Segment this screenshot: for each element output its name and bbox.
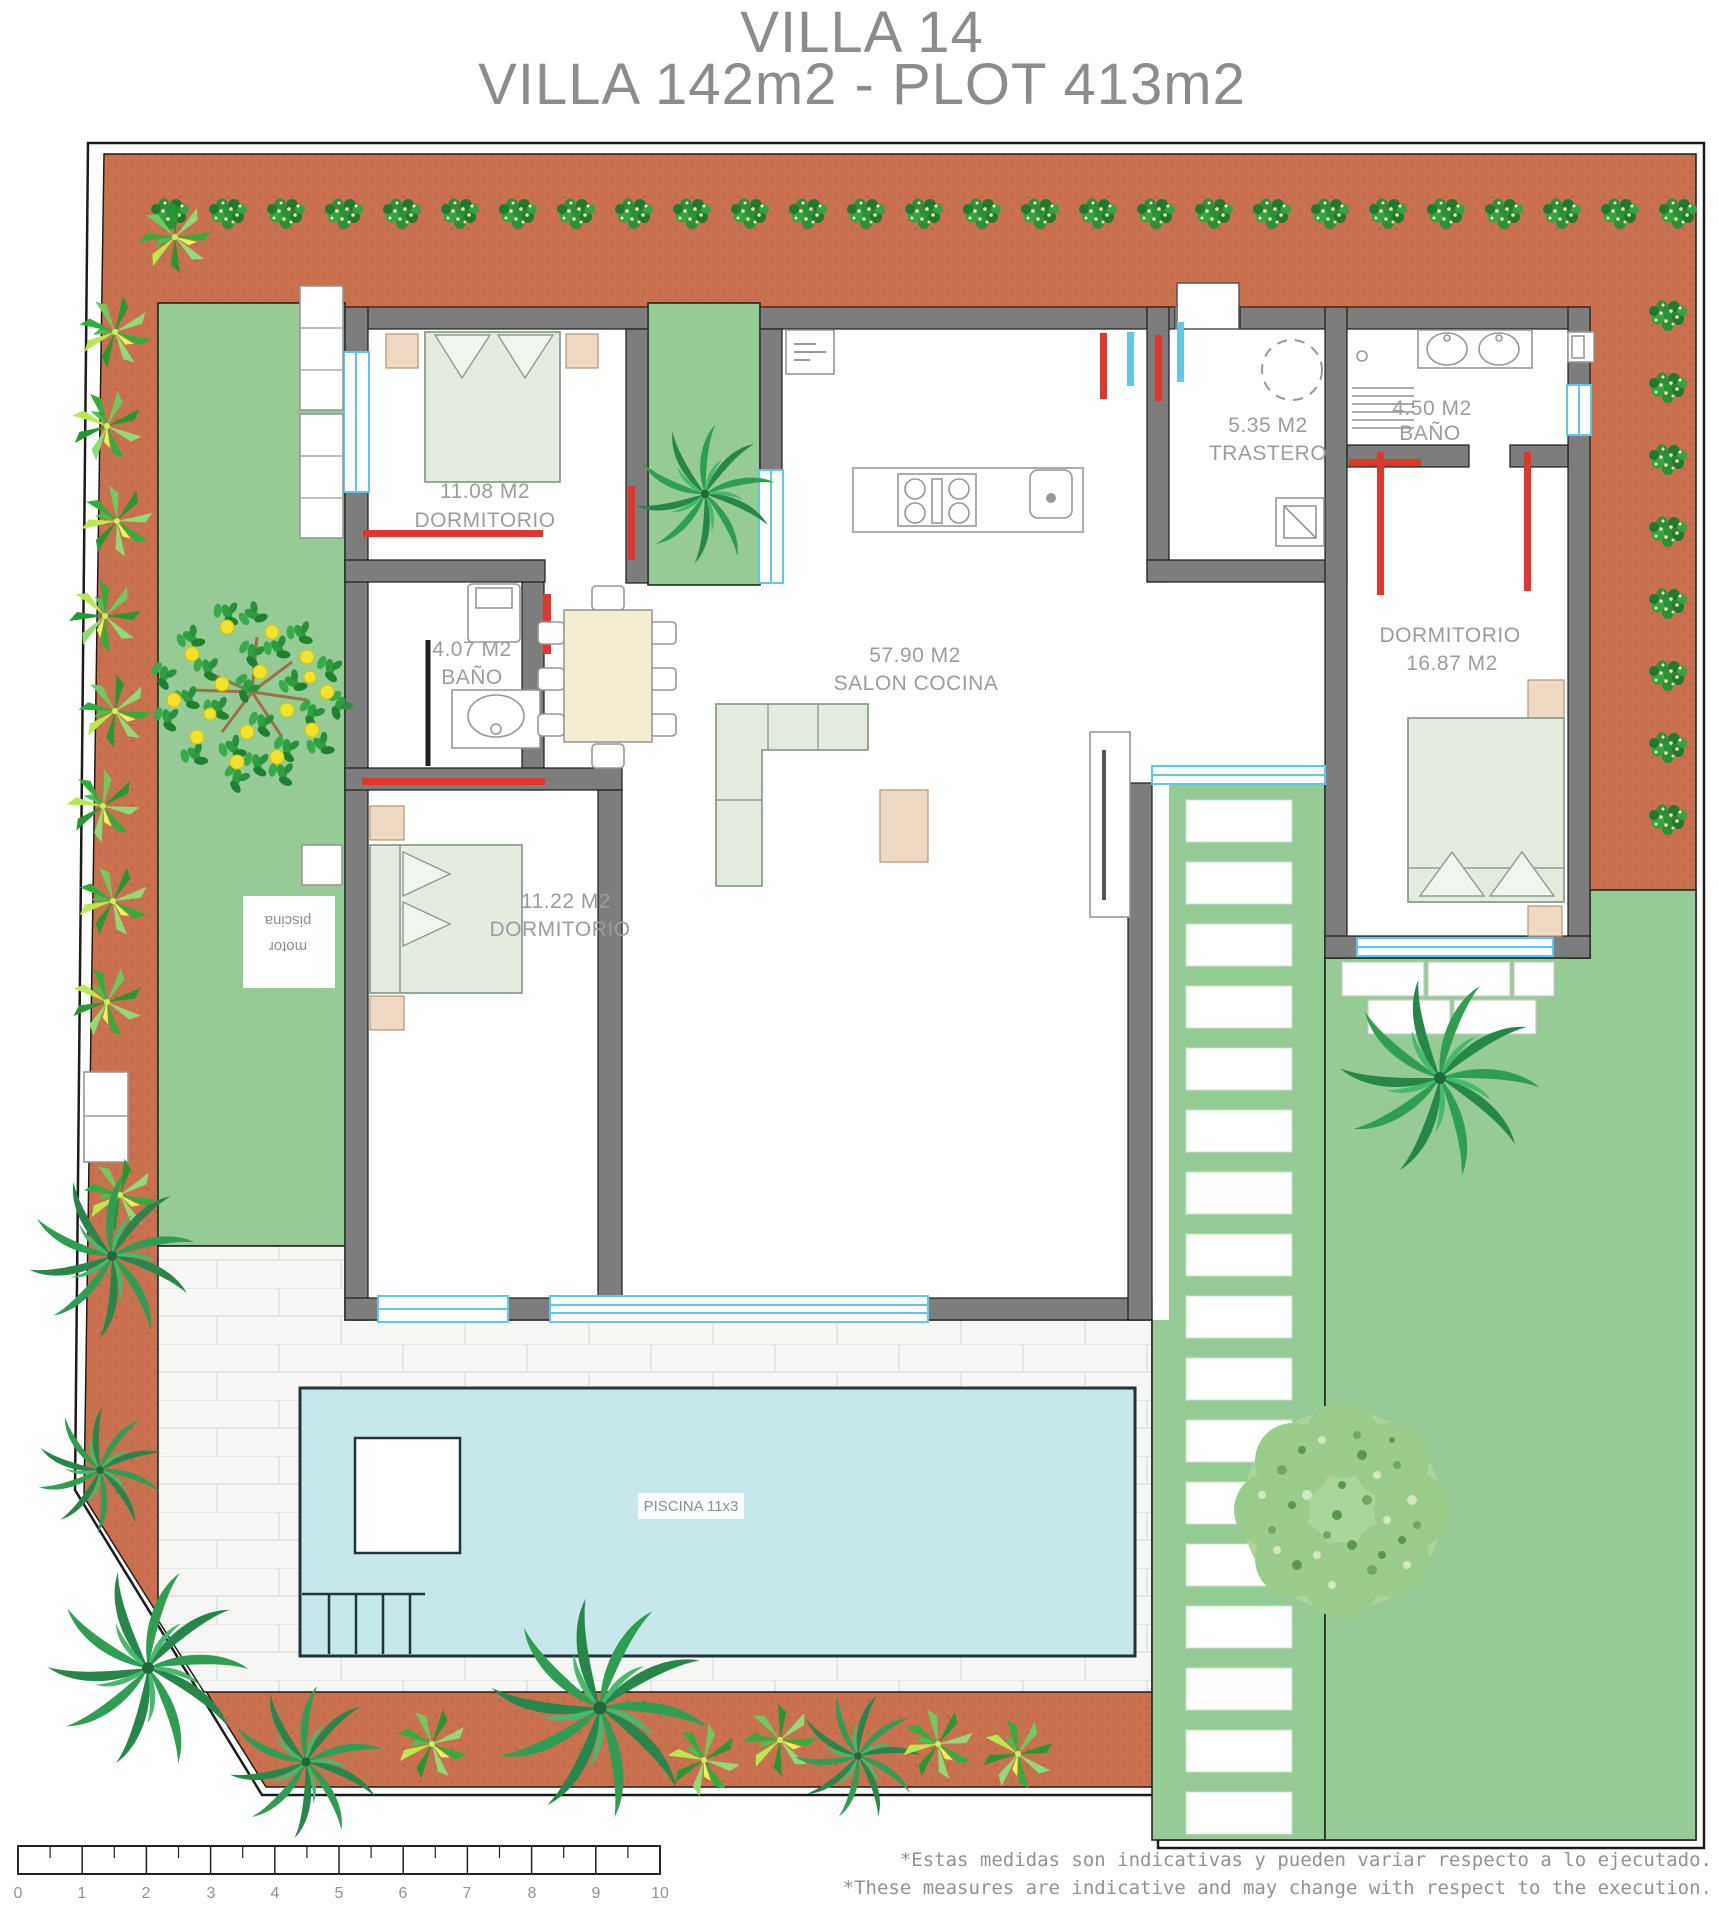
window bbox=[759, 470, 783, 583]
dormitorio1-area: 11.08 M2 bbox=[440, 480, 530, 503]
tv-unit bbox=[1090, 732, 1130, 917]
nightstand bbox=[386, 334, 418, 368]
coffee-table bbox=[880, 790, 928, 862]
scale-label: 10 bbox=[651, 1885, 669, 1902]
trastero-area: 5.35 M2 bbox=[1228, 414, 1307, 437]
bano1-name: BAÑO bbox=[441, 665, 503, 689]
stepping-stones bbox=[1186, 800, 1292, 1834]
bano2-name: BAÑO bbox=[1399, 421, 1461, 445]
dining-table bbox=[564, 610, 652, 742]
scale-label: 3 bbox=[207, 1885, 216, 1902]
dormitorio2-area: 11.22 M2 bbox=[521, 890, 611, 913]
window bbox=[378, 1296, 508, 1322]
scale-label: 7 bbox=[463, 1885, 472, 1902]
window bbox=[1357, 938, 1553, 956]
right-garden-bush bbox=[1234, 1402, 1450, 1618]
bedroom3-furniture bbox=[1408, 680, 1564, 936]
scale-label: 4 bbox=[271, 1885, 280, 1902]
title-line2: VILLA 142m2 - PLOT 413m2 bbox=[478, 52, 1246, 117]
entry-porch bbox=[1177, 283, 1239, 329]
closet bbox=[300, 414, 343, 538]
nightstand bbox=[566, 334, 598, 368]
scale-label: 1 bbox=[78, 1885, 87, 1902]
pool-motor-label-motor: motor bbox=[269, 938, 307, 955]
bano2-area: 4.50 M2 bbox=[1392, 397, 1471, 420]
nightstand bbox=[370, 806, 404, 840]
pool-platform bbox=[355, 1438, 460, 1553]
window bbox=[550, 1296, 928, 1322]
utility-box bbox=[84, 1072, 128, 1162]
bano1-area: 4.07 M2 bbox=[432, 638, 511, 661]
pool: PISCINA 11x3 bbox=[300, 1388, 1135, 1656]
disclaimer-en: *These measures are indicative and may c… bbox=[843, 1877, 1712, 1899]
scale-label: 0 bbox=[14, 1885, 23, 1902]
pool-label: PISCINA 11x3 bbox=[644, 1498, 739, 1515]
villa-floor-plan: PISCINA 11x3 bbox=[0, 0, 1719, 1920]
scale-label: 9 bbox=[592, 1885, 601, 1902]
scale-label: 6 bbox=[399, 1885, 408, 1902]
trastero-name: TRASTERO bbox=[1209, 442, 1327, 465]
pool-motor-label-piscina: piscina bbox=[264, 912, 311, 929]
floor-plan-page: PISCINA 11x3 bbox=[0, 0, 1719, 1920]
bed bbox=[1408, 718, 1564, 902]
dormitorio1-name: DORMITORIO bbox=[414, 509, 555, 532]
scale-bar: 0 1 2 3 4 5 6 7 8 9 10 bbox=[14, 1846, 669, 1902]
dormitorio2-name: DORMITORIO bbox=[489, 918, 630, 941]
window bbox=[1567, 385, 1591, 435]
salon-name: SALON COCINA bbox=[834, 672, 999, 695]
dormitorio3-name: DORMITORIO bbox=[1379, 624, 1520, 647]
dormitorio3-area: 16.87 M2 bbox=[1406, 652, 1498, 675]
salon-area: 57.90 M2 bbox=[869, 644, 961, 667]
window bbox=[344, 352, 369, 492]
scale-label: 5 bbox=[335, 1885, 344, 1902]
scale-label: 2 bbox=[142, 1885, 151, 1902]
closet bbox=[300, 286, 343, 410]
nightstand bbox=[1528, 680, 1564, 718]
scale-label: 8 bbox=[528, 1885, 537, 1902]
disclaimer-es: *Estas medidas son indicativas y pueden … bbox=[900, 1849, 1712, 1871]
window bbox=[1152, 766, 1325, 784]
nightstand bbox=[1528, 906, 1562, 936]
nightstand bbox=[370, 996, 404, 1030]
